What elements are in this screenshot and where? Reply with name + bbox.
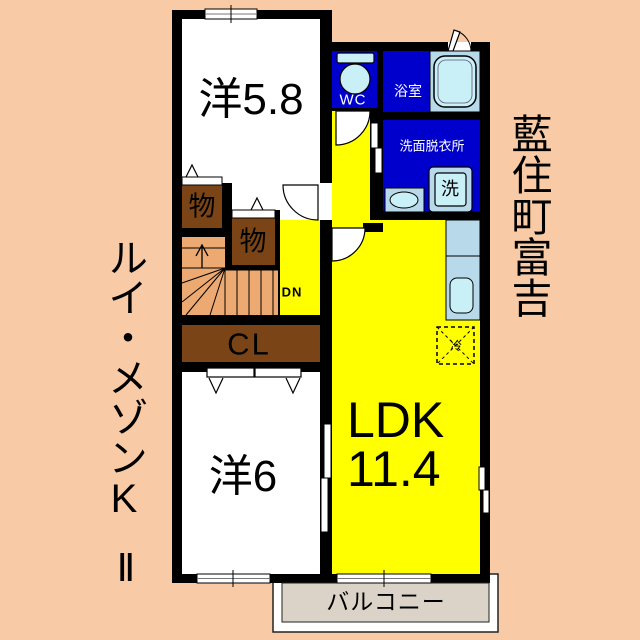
- ldk-name: LDK: [347, 396, 444, 445]
- room-label-balcony: バルコニー: [326, 591, 446, 614]
- stairs-direction-label: DN: [282, 286, 303, 299]
- fridge-label: 冷: [450, 340, 462, 352]
- sink-icon: [385, 188, 424, 212]
- room-label-storage2: 物: [240, 229, 267, 256]
- address-text: 藍住町富吉: [507, 113, 548, 318]
- room-label-closet: CL: [227, 329, 271, 360]
- room-label-washroom: 洗面脱衣所: [399, 140, 464, 153]
- washing-machine-label: 洗: [441, 180, 459, 198]
- building-name-suffix-text: Ⅱ: [106, 546, 144, 590]
- ldk-size: 11.4: [347, 445, 444, 494]
- bathtub-icon: [430, 51, 480, 112]
- entrance-door-icon: [448, 30, 471, 51]
- stair-hall-floor: [280, 220, 320, 315]
- room-label-western2: 洋6: [209, 455, 277, 499]
- floor-plan: 洋5.8 物 物 DN CL 洋6 LDK 11.4 WC 浴室 洗面脱衣所 洗…: [0, 0, 640, 640]
- building-name-text: ルイ・メゾンK: [104, 237, 144, 521]
- room-label-storage1: 物: [189, 194, 216, 221]
- room-label-western1: 洋5.8: [198, 78, 303, 122]
- floor-plan-graphic: [0, 0, 640, 640]
- room-label-ldk: LDK 11.4: [347, 396, 444, 494]
- room-label-bath: 浴室: [394, 84, 422, 98]
- room-label-wc: WC: [340, 93, 367, 108]
- kitchen-counter-icon: [446, 220, 480, 320]
